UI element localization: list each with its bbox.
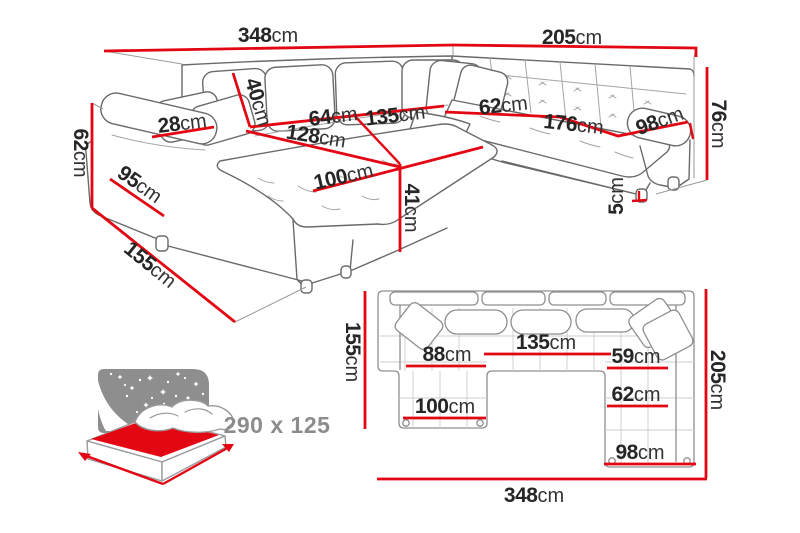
tv-label-155-depth-left: 155cm (341, 322, 364, 382)
armrest-leg-left (156, 236, 168, 251)
chaise-base-right (350, 240, 353, 271)
dim-label-41-seat-height: 41cm (400, 183, 423, 232)
top-view-back-cushions (390, 292, 685, 305)
chaise-leg-side (341, 266, 351, 278)
base-front-edge (168, 246, 302, 281)
dim-label-76-height: 76cm (707, 99, 730, 148)
dim-label-155-chaise-depth: 155cm (119, 237, 180, 293)
tv-label-98-right-arm: 98cm (615, 441, 664, 464)
tv-label-62-right-seat: 62cm (611, 383, 660, 406)
chaise (217, 124, 497, 293)
top-view-drawing: 155cm 205cm 135cm 88cm 59cm 62cm 100cm 9… (341, 289, 729, 507)
tv-label-88-seat-left: 88cm (422, 343, 471, 366)
dim-label-205-right: 205cm (542, 26, 602, 49)
tv-label-205-depth-right: 205cm (706, 350, 729, 410)
sofa-perspective-drawing (86, 56, 694, 293)
dim-label-5-leg-height: 5cm (605, 177, 628, 215)
diagram-canvas: 348cm 205cm 40cm 28cm 64cm 135cm 128cm 6… (0, 0, 800, 533)
tv-label-59-seat-right: 59cm (611, 345, 660, 368)
tv-label-100-chaise-width: 100cm (415, 395, 475, 418)
bed-icon (78, 369, 234, 484)
tv-label-135-seat-middle: 135cm (516, 331, 576, 354)
dim-label-62-armrest-height: 62cm (69, 128, 92, 177)
dim-line-right-end-drop (690, 123, 693, 139)
sleeping-area-label: 290 x 125 (224, 412, 331, 438)
sofa-dimensions-diagram: 348cm 205cm 40cm 28cm 64cm 135cm 128cm 6… (0, 0, 800, 533)
dim-label-348-left: 348cm (238, 24, 298, 47)
dim-label-95-armrest-depth: 95cm (113, 161, 166, 208)
tv-label-348-total-width: 348cm (504, 484, 564, 507)
chaise-leg-front (301, 280, 312, 293)
